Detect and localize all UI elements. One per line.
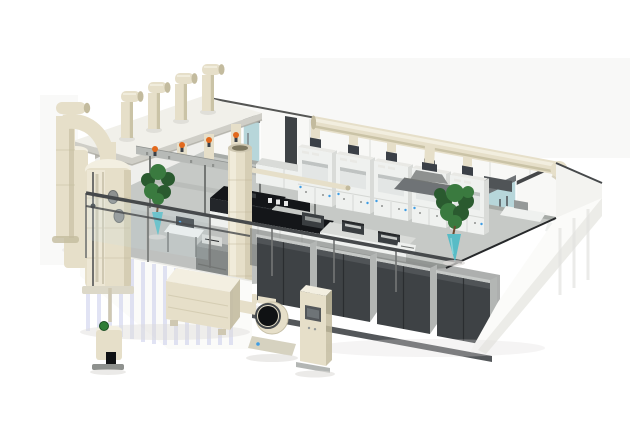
silencer-box [166, 268, 240, 335]
lab-render-canvas: 3D cutaway rendering of a laboratory wit… [0, 0, 640, 425]
control-pedestal [295, 285, 335, 378]
storage-cabinet [376, 258, 437, 334]
